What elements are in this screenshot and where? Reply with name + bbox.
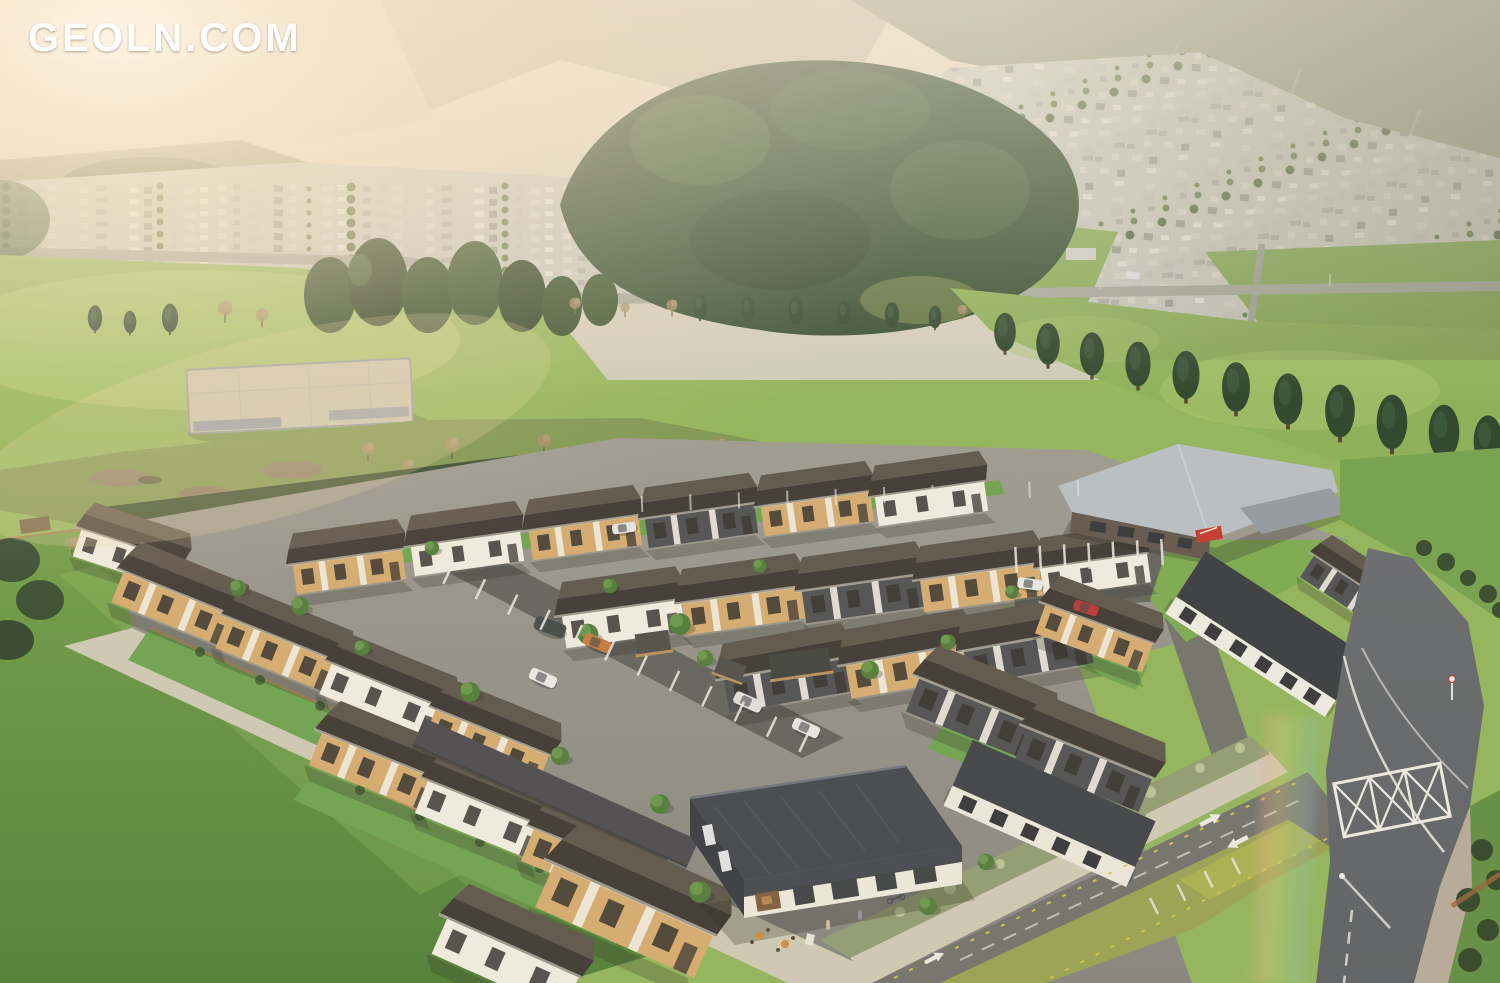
light-overlays <box>0 0 1500 983</box>
aerial-development-render: GEOLN.COM <box>0 0 1500 983</box>
watermark-logo: GEOLN.COM <box>28 16 302 61</box>
warm-tint <box>0 0 1500 983</box>
scene-canvas <box>0 0 1500 983</box>
